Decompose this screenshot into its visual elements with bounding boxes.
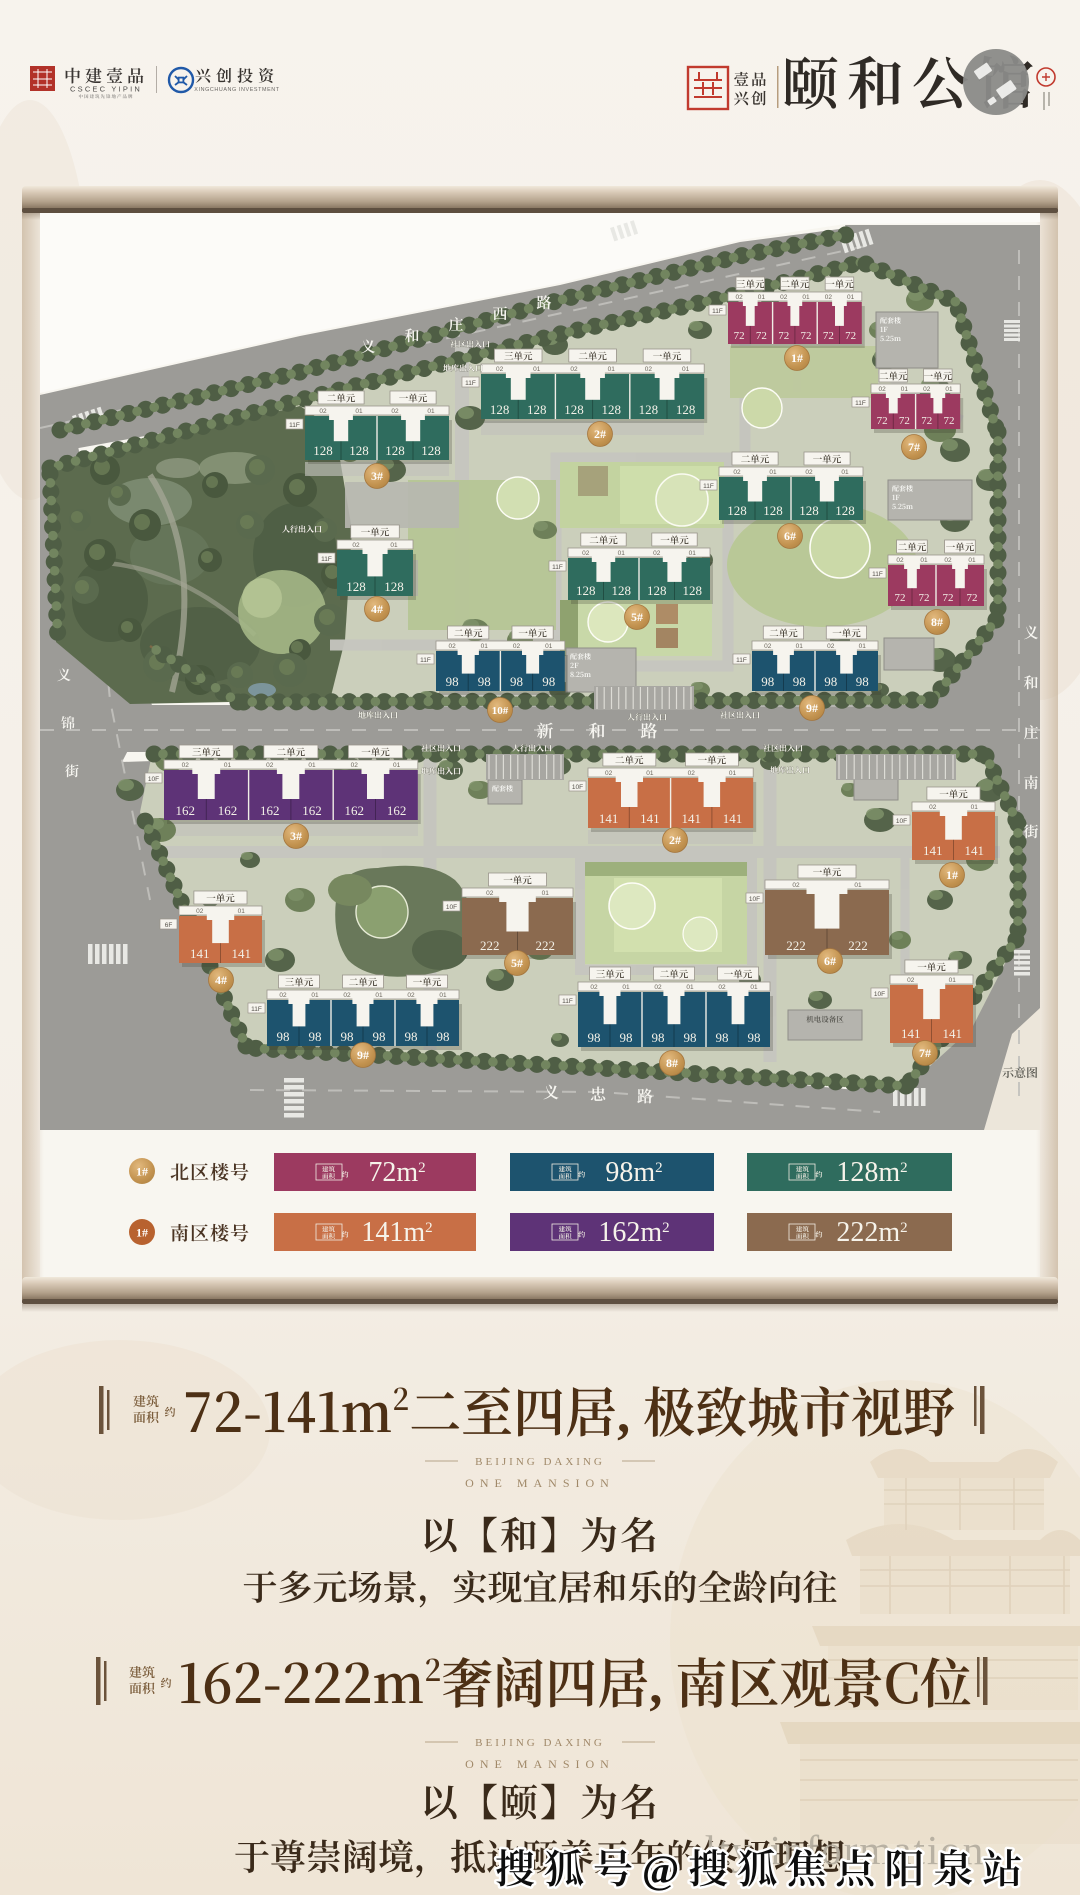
svg-text:02: 02 (733, 469, 741, 476)
svg-text:128: 128 (835, 503, 855, 518)
svg-text:222m2: 222m2 (836, 1217, 907, 1248)
svg-text:路: 路 (637, 1084, 653, 1107)
svg-text:162m2: 162m2 (598, 1217, 669, 1248)
svg-text:02: 02 (448, 643, 456, 650)
svg-text:01: 01 (971, 804, 979, 811)
svg-text:01: 01 (618, 550, 626, 557)
svg-text:98: 98 (620, 1030, 633, 1045)
svg-text:约: 约 (165, 1404, 176, 1420)
svg-text:01: 01 (439, 992, 447, 999)
svg-text:约: 约 (342, 1230, 349, 1240)
svg-text:一单元: 一单元 (825, 277, 854, 291)
svg-text:141: 141 (190, 946, 210, 961)
svg-text:128: 128 (346, 579, 366, 594)
svg-text:162: 162 (218, 803, 238, 818)
svg-text:面积: 面积 (796, 1232, 810, 1241)
svg-text:162-222m2奢阔四居, 南区观景C位: 162-222m2奢阔四居, 南区观景C位 (178, 1642, 972, 1719)
svg-text:一单元: 一单元 (503, 873, 532, 887)
svg-text:于多元场景，实现宜居和乐的全龄向往: 于多元场景，实现宜居和乐的全龄向往 (242, 1561, 837, 1611)
svg-text:11F: 11F (420, 657, 431, 664)
svg-text:10F: 10F (446, 904, 457, 911)
svg-text:11F: 11F (552, 564, 563, 571)
svg-text:01: 01 (224, 762, 232, 769)
svg-text:11F: 11F (712, 308, 723, 315)
svg-text:128: 128 (676, 402, 696, 417)
svg-text:一单元: 一单元 (399, 391, 428, 405)
svg-text:02: 02 (896, 557, 904, 564)
svg-text:72: 72 (845, 330, 856, 342)
svg-text:ONE MANSION: ONE MANSION (465, 1757, 615, 1771)
svg-text:二单元: 二单元 (277, 745, 306, 759)
svg-text:一单元: 一单元 (361, 745, 390, 759)
svg-text:02: 02 (827, 643, 835, 650)
svg-text:72: 72 (943, 592, 954, 604)
svg-text:11F: 11F (703, 483, 714, 490)
svg-text:8#: 8# (931, 615, 943, 629)
svg-text:面积: 面积 (322, 1232, 336, 1241)
svg-text:98: 98 (761, 674, 774, 689)
svg-text:ONE MANSION: ONE MANSION (465, 1476, 615, 1490)
svg-text:二单元: 二单元 (349, 975, 378, 989)
svg-text:02: 02 (407, 992, 415, 999)
svg-text:01: 01 (901, 386, 909, 393)
svg-text:10F: 10F (896, 818, 907, 825)
svg-text:11F: 11F (289, 422, 300, 429)
svg-text:三单元: 三单元 (192, 745, 221, 759)
svg-text:01: 01 (859, 643, 867, 650)
svg-text:128m2: 128m2 (836, 1157, 907, 1188)
svg-text:162: 162 (175, 803, 195, 818)
svg-text:02: 02 (923, 386, 931, 393)
svg-text:72: 72 (801, 330, 812, 342)
svg-text:01: 01 (390, 542, 398, 549)
svg-text:机电设备区: 机电设备区 (806, 1014, 844, 1025)
svg-text:一单元: 一单元 (939, 787, 968, 801)
svg-text:98: 98 (748, 1030, 761, 1045)
svg-text:义: 义 (543, 1080, 559, 1103)
svg-text:128: 128 (576, 583, 596, 598)
svg-text:约: 约 (815, 1170, 822, 1180)
svg-text:141: 141 (681, 811, 701, 826)
svg-text:兴创: 兴创 (733, 87, 768, 109)
svg-text:72: 72 (734, 330, 745, 342)
svg-text:02: 02 (929, 804, 937, 811)
svg-text:一单元: 一单元 (917, 960, 946, 974)
svg-text:128: 128 (385, 443, 405, 458)
svg-text:2#: 2# (669, 833, 681, 847)
svg-text:二单元: 二单元 (898, 540, 927, 554)
svg-text:98: 98 (309, 1029, 322, 1044)
svg-text:02: 02 (496, 366, 504, 373)
svg-text:义: 义 (360, 336, 375, 357)
svg-text:约: 约 (342, 1170, 349, 1180)
svg-text:一单元: 一单元 (813, 865, 842, 879)
svg-text:1#: 1# (136, 1226, 148, 1240)
svg-text:01: 01 (545, 643, 553, 650)
svg-text:义: 义 (1023, 622, 1038, 643)
svg-text:01: 01 (622, 984, 630, 991)
svg-text:地库出入口: 地库出入口 (770, 765, 810, 776)
svg-text:01: 01 (533, 366, 541, 373)
svg-text:南区楼号: 南区楼号 (170, 1219, 250, 1246)
svg-text:新: 新 (537, 717, 554, 742)
svg-text:11F: 11F (855, 400, 866, 407)
svg-text:二单元: 二单元 (589, 533, 618, 547)
svg-text:128: 128 (727, 503, 747, 518)
svg-text:一单元: 一单元 (813, 452, 842, 466)
svg-text:141: 141 (231, 946, 251, 961)
svg-text:02: 02 (570, 366, 578, 373)
svg-text:128: 128 (527, 402, 547, 417)
svg-text:141m2: 141m2 (361, 1217, 432, 1248)
svg-text:兴创投资: 兴创投资 (195, 64, 279, 87)
svg-text:一单元: 一单元 (413, 975, 442, 989)
svg-text:以【颐】为名: 以【颐】为名 (420, 1772, 660, 1827)
svg-text:128: 128 (313, 443, 333, 458)
svg-text:10F: 10F (148, 776, 159, 783)
svg-text:01: 01 (945, 386, 953, 393)
svg-text:01: 01 (308, 762, 316, 769)
svg-text:8.25m: 8.25m (570, 670, 591, 680)
svg-text:地库出入口: 地库出入口 (421, 766, 461, 777)
svg-text:72: 72 (778, 330, 789, 342)
svg-text:72: 72 (877, 415, 888, 427)
svg-text:222: 222 (535, 938, 555, 953)
svg-text:中建壹品: 中建壹品 (64, 62, 148, 87)
svg-text:3#: 3# (290, 829, 302, 843)
svg-text:10F: 10F (749, 896, 760, 903)
svg-text:128: 128 (763, 503, 783, 518)
svg-text:128: 128 (564, 402, 584, 417)
svg-text:02: 02 (590, 984, 598, 991)
svg-text:忠: 忠 (590, 1082, 606, 1105)
svg-text:1#: 1# (946, 868, 958, 882)
svg-text:02: 02 (182, 762, 190, 769)
svg-text:98m2: 98m2 (605, 1157, 662, 1188)
svg-text:128: 128 (682, 583, 702, 598)
svg-text:02: 02 (825, 294, 833, 301)
svg-text:141: 141 (901, 1026, 921, 1041)
svg-text:98: 98 (716, 1030, 729, 1045)
svg-text:11F: 11F (321, 556, 332, 563)
svg-text:一单元: 一单元 (206, 891, 235, 905)
svg-text:98: 98 (542, 674, 555, 689)
svg-text:01: 01 (427, 408, 435, 415)
svg-text:义: 义 (57, 665, 71, 685)
svg-text:01: 01 (729, 770, 737, 777)
svg-text:01: 01 (802, 294, 810, 301)
svg-text:02: 02 (654, 984, 662, 991)
svg-text:和: 和 (589, 717, 606, 742)
svg-text:98: 98 (277, 1029, 290, 1044)
svg-text:01: 01 (796, 643, 804, 650)
svg-text:162: 162 (345, 803, 365, 818)
svg-text:街: 街 (1023, 821, 1038, 842)
svg-text:98: 98 (405, 1029, 418, 1044)
svg-text:人行出入口: 人行出入口 (282, 524, 322, 535)
svg-text:社区出入口: 社区出入口 (450, 339, 490, 350)
svg-text:地库出入口: 地库出入口 (358, 710, 398, 721)
svg-text:01: 01 (311, 992, 319, 999)
svg-text:南: 南 (1023, 772, 1038, 793)
svg-text:二单元: 二单元 (879, 369, 908, 383)
svg-text:BEIJING DAXING: BEIJING DAXING (475, 1456, 605, 1468)
svg-text:锦: 锦 (61, 713, 75, 733)
svg-text:6F: 6F (165, 922, 173, 929)
svg-text:面积: 面积 (796, 1172, 810, 1181)
svg-text:面积: 面积 (559, 1232, 573, 1241)
svg-text:72: 72 (944, 415, 955, 427)
svg-text:示意图: 示意图 (1002, 1064, 1038, 1081)
svg-text:222: 222 (786, 938, 806, 953)
svg-text:10F: 10F (572, 784, 583, 791)
svg-text:一单元: 一单元 (698, 753, 727, 767)
svg-text:中国建筑先锋地产品牌: 中国建筑先锋地产品牌 (79, 94, 134, 100)
svg-text:128: 128 (490, 402, 510, 417)
svg-text:98: 98 (437, 1029, 450, 1044)
svg-text:02: 02 (343, 992, 351, 999)
svg-text:01: 01 (968, 557, 976, 564)
svg-text:10#: 10# (492, 705, 509, 717)
svg-text:11F: 11F (562, 998, 573, 1005)
svg-text:02: 02 (279, 992, 287, 999)
svg-text:1#: 1# (136, 1165, 148, 1179)
svg-text:141: 141 (942, 1026, 962, 1041)
svg-text:01: 01 (920, 557, 928, 564)
svg-text:02: 02 (792, 882, 800, 889)
svg-text:8#: 8# (666, 1056, 678, 1070)
svg-text:02: 02 (944, 557, 952, 564)
svg-text:02: 02 (805, 469, 813, 476)
svg-text:一单元: 一单元 (653, 349, 682, 363)
svg-text:128: 128 (601, 402, 621, 417)
svg-text:和: 和 (404, 325, 419, 346)
svg-text:02: 02 (352, 542, 360, 549)
svg-text:二单元: 二单元 (781, 277, 810, 291)
svg-text:72-141m2二至四居, 极致城市视野: 72-141m2二至四居, 极致城市视野 (183, 1371, 955, 1448)
svg-text:02: 02 (605, 770, 613, 777)
svg-text:约: 约 (578, 1170, 585, 1180)
svg-text:141: 141 (599, 811, 619, 826)
svg-text:72: 72 (921, 415, 932, 427)
svg-text:10F: 10F (874, 991, 885, 998)
svg-text:01: 01 (393, 762, 401, 769)
svg-text:02: 02 (780, 294, 788, 301)
svg-text:02: 02 (196, 908, 204, 915)
svg-text:约: 约 (161, 1675, 172, 1691)
svg-text:01: 01 (689, 550, 697, 557)
svg-text:01: 01 (646, 770, 654, 777)
svg-text:地库出入口: 地库出入口 (443, 363, 483, 374)
svg-text:二单元: 二单元 (615, 753, 644, 767)
svg-text:人行出入口: 人行出入口 (627, 712, 667, 723)
svg-text:02: 02 (582, 550, 590, 557)
svg-text:98: 98 (588, 1030, 601, 1045)
svg-text:98: 98 (373, 1029, 386, 1044)
svg-text:98: 98 (856, 674, 869, 689)
svg-text:72: 72 (895, 592, 906, 604)
svg-text:72: 72 (899, 415, 910, 427)
svg-text:11F: 11F (251, 1006, 262, 1013)
svg-text:98: 98 (341, 1029, 354, 1044)
svg-text:141: 141 (964, 843, 984, 858)
svg-text:三单元: 三单元 (736, 277, 765, 291)
svg-text:01: 01 (542, 890, 550, 897)
svg-text:6#: 6# (784, 529, 796, 543)
svg-text:5#: 5# (631, 610, 643, 624)
svg-text:98: 98 (684, 1030, 697, 1045)
svg-text:11F: 11F (736, 657, 747, 664)
svg-text:面积: 面积 (559, 1172, 573, 1181)
svg-text:01: 01 (758, 294, 766, 301)
svg-text:一单元: 一单元 (724, 967, 753, 981)
svg-text:141: 141 (640, 811, 660, 826)
svg-text:162: 162 (260, 803, 280, 818)
svg-text:01: 01 (847, 294, 855, 301)
svg-text:人行出入口: 人行出入口 (512, 743, 552, 754)
svg-text:02: 02 (653, 550, 661, 557)
svg-text:02: 02 (351, 762, 359, 769)
svg-text:三单元: 三单元 (596, 967, 625, 981)
svg-text:CSCEC YIPIN: CSCEC YIPIN (70, 85, 142, 94)
svg-text:128: 128 (639, 402, 659, 417)
svg-text:98: 98 (478, 674, 491, 689)
svg-text:社区出入口: 社区出入口 (421, 743, 461, 754)
svg-text:一单元: 一单元 (361, 525, 390, 539)
svg-text:72: 72 (823, 330, 834, 342)
svg-text:和: 和 (1023, 672, 1038, 693)
svg-text:3#: 3# (371, 469, 383, 483)
svg-text:7#: 7# (919, 1046, 931, 1060)
svg-text:二单元: 二单元 (660, 967, 689, 981)
svg-text:路: 路 (536, 292, 551, 313)
svg-text:搜狐号@搜狐焦点阳泉站: 搜狐号@搜狐焦点阳泉站 (495, 1838, 1031, 1895)
svg-text:9#: 9# (357, 1048, 369, 1062)
svg-text:社区出入口: 社区出入口 (763, 743, 803, 754)
svg-text:01: 01 (841, 469, 849, 476)
svg-text:02: 02 (718, 984, 726, 991)
svg-text:72: 72 (919, 592, 930, 604)
svg-text:128: 128 (384, 579, 404, 594)
svg-text:11F: 11F (872, 571, 883, 578)
svg-text:02: 02 (486, 890, 494, 897)
svg-text:配套楼: 配套楼 (492, 784, 513, 794)
svg-text:三单元: 三单元 (285, 975, 314, 989)
svg-text:01: 01 (375, 992, 383, 999)
svg-text:面积: 面积 (133, 1407, 159, 1426)
svg-text:01: 01 (355, 408, 363, 415)
svg-text:98: 98 (793, 674, 806, 689)
svg-text:二单元: 二单元 (454, 626, 483, 640)
svg-text:面积: 面积 (322, 1172, 336, 1181)
svg-text:约: 约 (815, 1230, 822, 1240)
svg-text:01: 01 (481, 643, 489, 650)
svg-text:5.25m: 5.25m (880, 334, 901, 344)
svg-text:1#: 1# (791, 351, 803, 365)
svg-text:北区楼号: 北区楼号 (170, 1158, 250, 1185)
svg-text:面积: 面积 (129, 1678, 155, 1697)
svg-text:XINGCHUANG INVESTMENT: XINGCHUANG INVESTMENT (194, 87, 279, 93)
svg-text:02: 02 (735, 294, 743, 301)
svg-text:2#: 2# (594, 427, 606, 441)
svg-text:7#: 7# (908, 440, 920, 454)
svg-text:162: 162 (387, 803, 407, 818)
svg-text:02: 02 (645, 366, 653, 373)
svg-text:01: 01 (949, 977, 957, 984)
svg-text:128: 128 (349, 443, 369, 458)
svg-text:02: 02 (907, 977, 915, 984)
svg-text:141: 141 (723, 811, 743, 826)
svg-text:11F: 11F (465, 380, 476, 387)
svg-text:01: 01 (238, 908, 246, 915)
svg-text:街: 街 (65, 761, 79, 781)
svg-text:一单元: 一单元 (518, 626, 547, 640)
svg-text:9#: 9# (806, 701, 818, 715)
svg-text:4#: 4# (371, 602, 383, 616)
svg-text:02: 02 (319, 408, 327, 415)
svg-text:一单元: 一单元 (946, 540, 975, 554)
svg-text:72: 72 (967, 592, 978, 604)
svg-text:5.25m: 5.25m (892, 502, 913, 512)
svg-text:约: 约 (578, 1230, 585, 1240)
svg-text:128: 128 (421, 443, 441, 458)
svg-text:庄: 庄 (448, 314, 463, 335)
svg-text:141: 141 (923, 843, 943, 858)
svg-text:01: 01 (686, 984, 694, 991)
svg-text:庄: 庄 (1023, 722, 1038, 743)
svg-text:01: 01 (769, 469, 777, 476)
svg-text:三单元: 三单元 (504, 349, 533, 363)
svg-text:西: 西 (492, 303, 507, 324)
svg-text:222: 222 (848, 938, 868, 953)
svg-text:222: 222 (480, 938, 500, 953)
svg-text:以【和】为名: 以【和】为名 (420, 1505, 660, 1560)
svg-text:二单元: 二单元 (769, 626, 798, 640)
svg-text:一单元: 一单元 (660, 533, 689, 547)
svg-text:社区出入口: 社区出入口 (720, 710, 760, 721)
svg-text:128: 128 (799, 503, 819, 518)
svg-text:02: 02 (391, 408, 399, 415)
svg-text:二单元: 二单元 (327, 391, 356, 405)
svg-text:二单元: 二单元 (578, 349, 607, 363)
svg-text:02: 02 (266, 762, 274, 769)
svg-text:01: 01 (608, 366, 616, 373)
svg-text:128: 128 (647, 583, 667, 598)
svg-text:01: 01 (854, 882, 862, 889)
svg-text:01: 01 (750, 984, 758, 991)
svg-text:一单元: 一单元 (924, 369, 953, 383)
svg-text:二单元: 二单元 (741, 452, 770, 466)
svg-text:01: 01 (682, 366, 690, 373)
svg-text:02: 02 (688, 770, 696, 777)
svg-text:98: 98 (446, 674, 459, 689)
svg-text:一单元: 一单元 (832, 626, 861, 640)
svg-text:02: 02 (878, 386, 886, 393)
svg-text:98: 98 (652, 1030, 665, 1045)
svg-text:162: 162 (302, 803, 322, 818)
svg-text:5#: 5# (511, 956, 523, 970)
svg-text:02: 02 (764, 643, 772, 650)
svg-text:6#: 6# (824, 954, 836, 968)
svg-text:4#: 4# (215, 973, 227, 987)
svg-text:98: 98 (510, 674, 523, 689)
svg-text:02: 02 (513, 643, 521, 650)
svg-text:128: 128 (611, 583, 631, 598)
svg-text:72: 72 (756, 330, 767, 342)
svg-text:98: 98 (824, 674, 837, 689)
svg-text:BEIJING DAXING: BEIJING DAXING (475, 1737, 605, 1749)
svg-text:72m2: 72m2 (368, 1157, 425, 1188)
